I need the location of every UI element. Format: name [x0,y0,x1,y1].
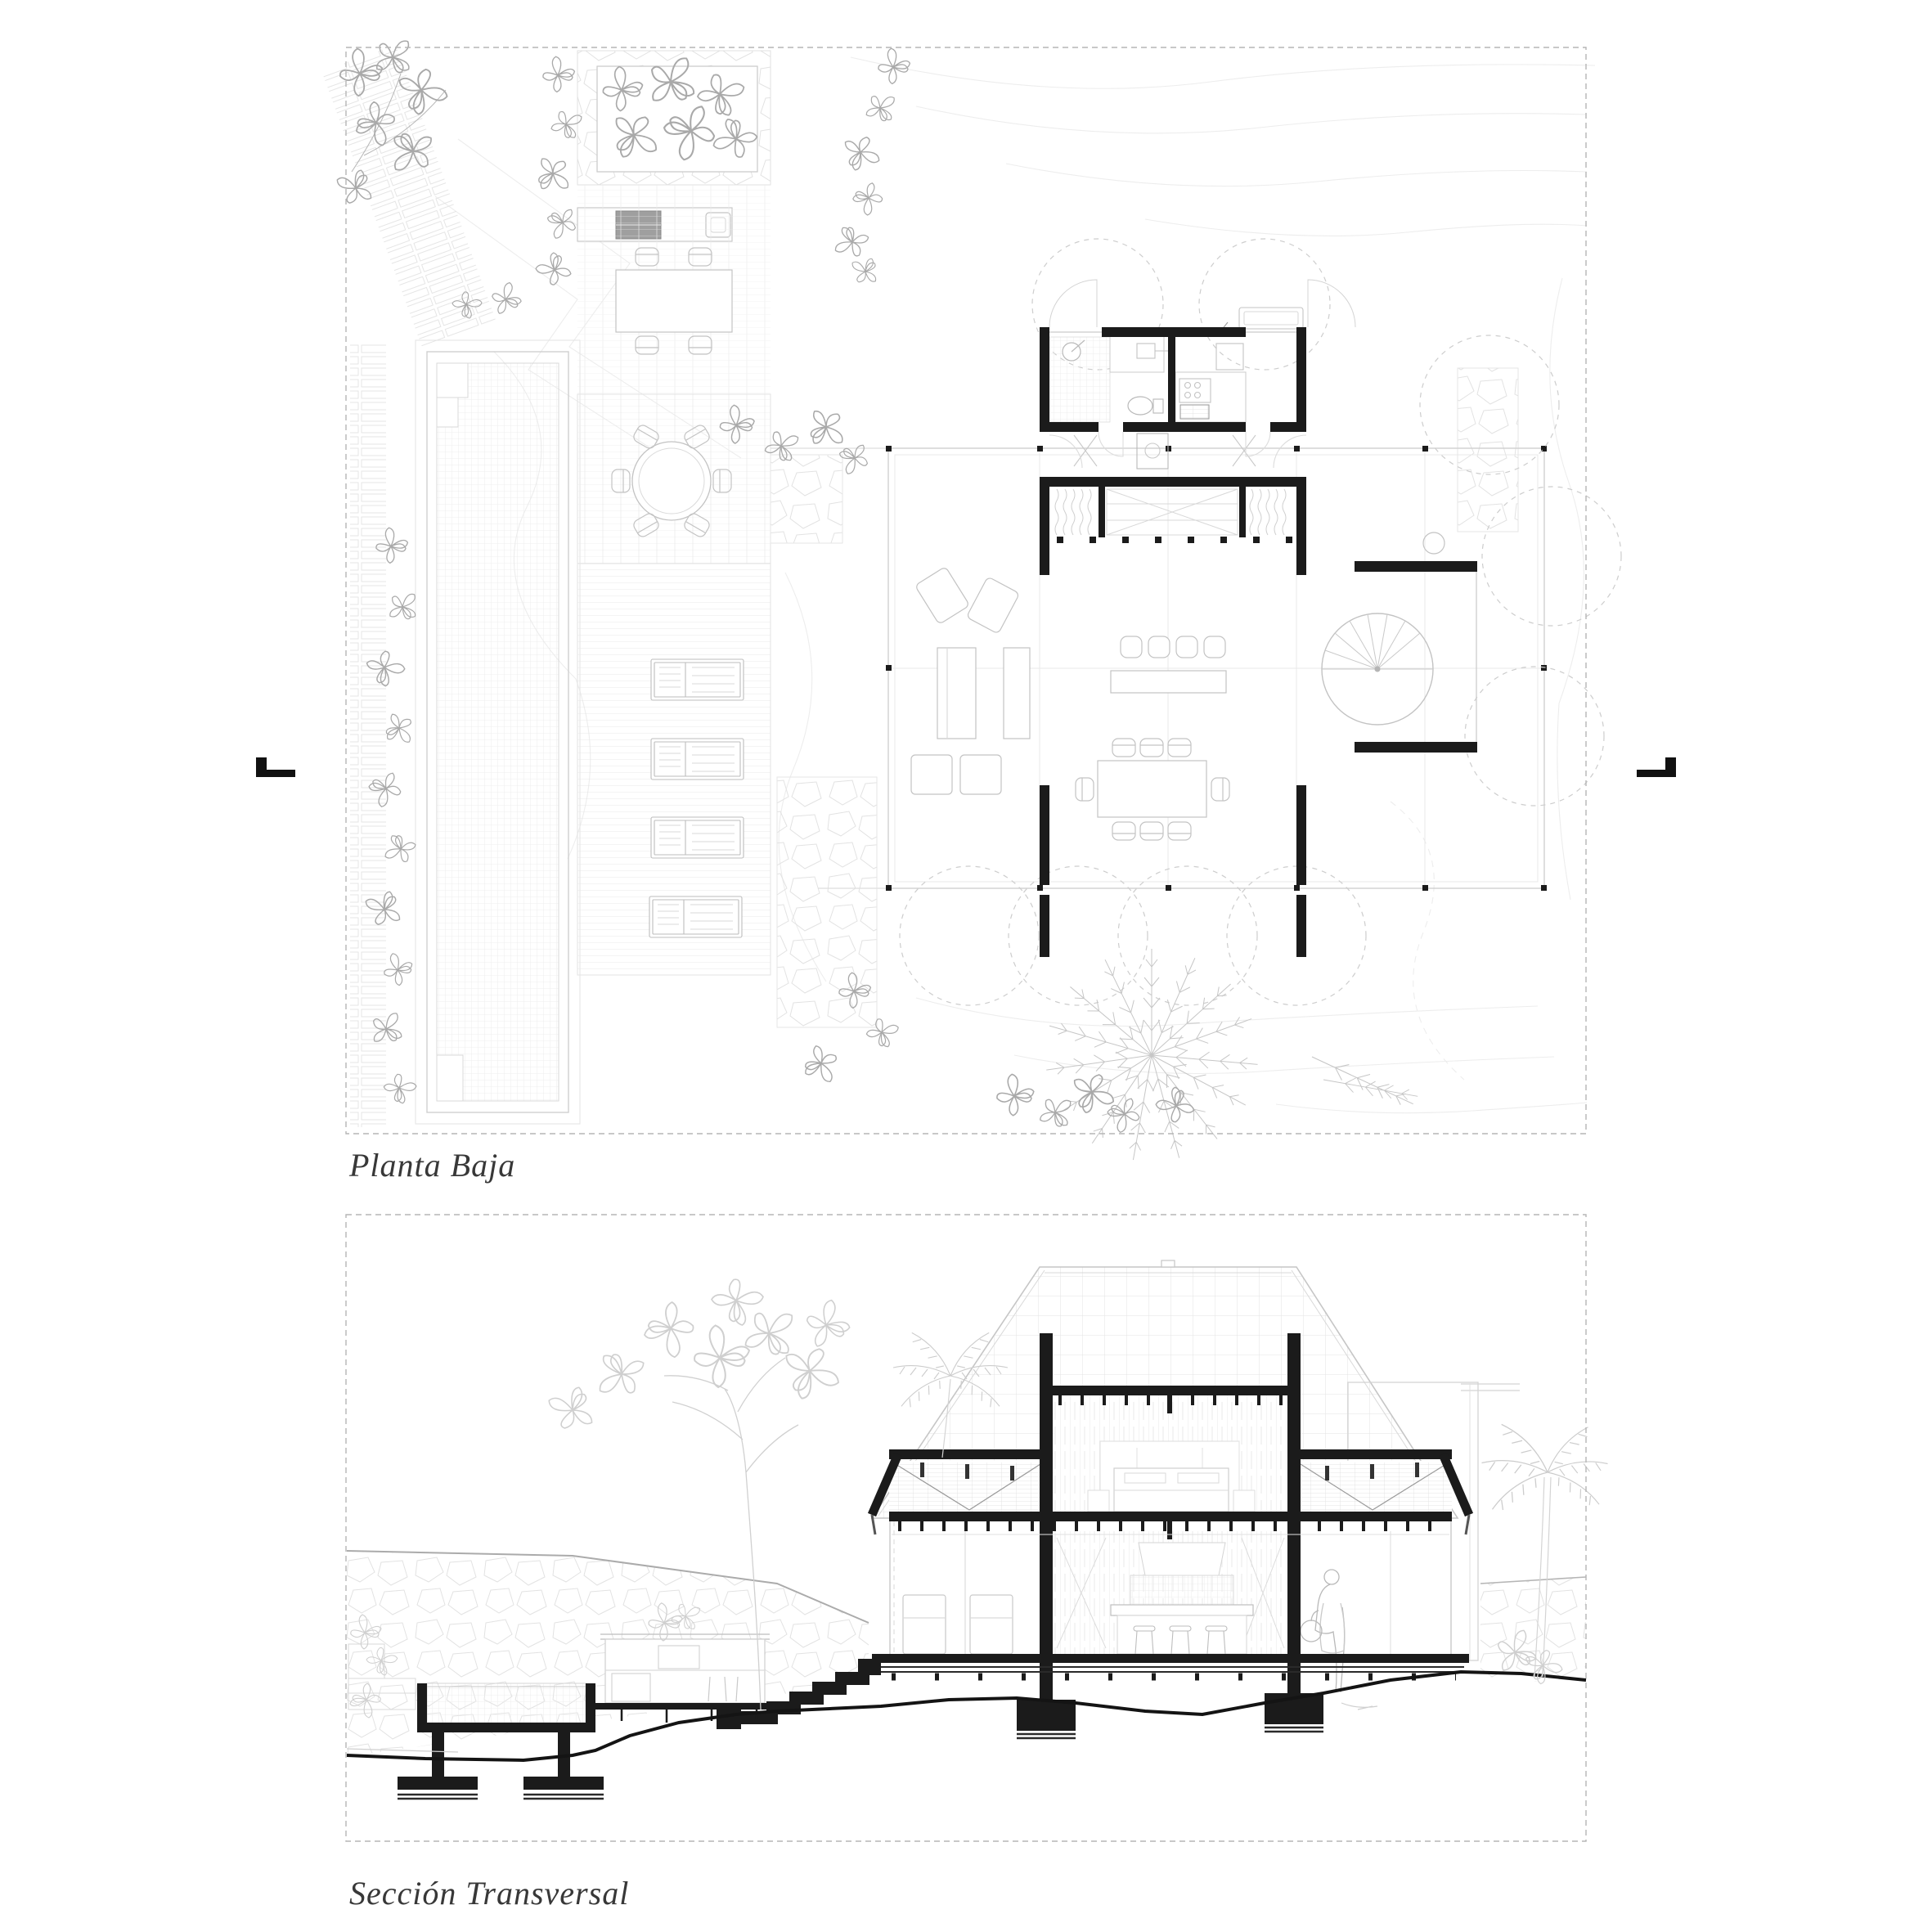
dining-table-plan [1098,761,1206,817]
sun-lounger [651,817,744,858]
round-table-terrace-plan [577,394,771,564]
plan-title: Planta Baja [348,1147,515,1184]
coffee-table-plan [1111,671,1226,693]
outdoor-dining-table [616,270,732,332]
kitchen-counter-section [1111,1605,1253,1615]
sun-lounger [651,739,744,780]
sun-lounger [651,659,744,700]
porch-armchair [970,1595,1013,1654]
left-wing-truss [889,1462,1049,1513]
architectural-sheet: Planta Baja [0,0,1932,1932]
section-title: Sección Transversal [349,1875,629,1912]
pool-plan [416,340,580,1124]
range-hood-section [1139,1543,1225,1575]
ground-floor-section [1054,1531,1289,1654]
outdoor-kitchen-terrace-plan [577,46,771,394]
porch-armchair [903,1595,946,1654]
sun-lounger [649,896,742,937]
toilet-plan [1128,397,1152,415]
sun-deck-plan [577,564,771,975]
right-wing-truss [1291,1462,1452,1513]
